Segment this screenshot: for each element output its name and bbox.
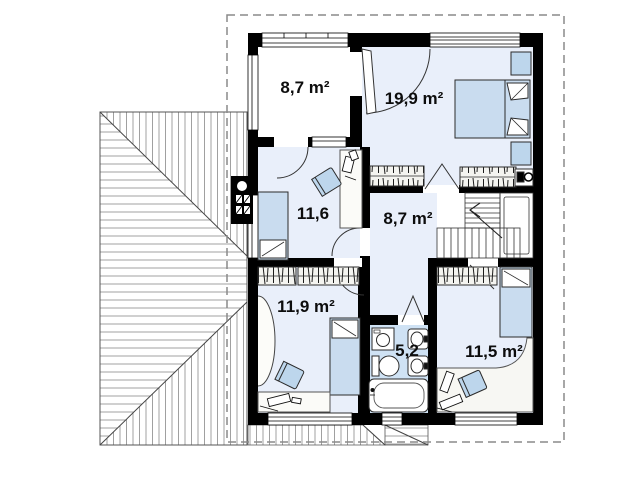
door-opening-bathroom — [398, 315, 424, 325]
window-balcony-bedroom2 — [312, 137, 346, 147]
wardrobe-bedroom4 — [437, 267, 497, 285]
door-opening-balcony-bedroom2 — [274, 137, 308, 147]
wall-vent-box — [515, 169, 533, 186]
balcony-label: 8,7 m² — [280, 78, 329, 97]
washing-machine — [372, 328, 394, 350]
door-opening-bedroom3 — [334, 258, 362, 267]
door-opening-bedroom2 — [360, 228, 370, 256]
floor-plan-drawing: 8,7 m² 19,9 m² 11,6 8,7 m² 11,9 m² 5,2 1… — [0, 0, 640, 478]
wardrobe-bedroom1-left — [370, 166, 424, 186]
wardrobe-bedroom1-right — [460, 167, 516, 187]
bedroom3-label: 11,9 m² — [277, 297, 335, 316]
window-bedroom3-bottom — [268, 413, 352, 425]
window-bathroom-bottom — [382, 413, 402, 425]
door-opening-balcony — [350, 52, 362, 96]
door-opening-bedroom1 — [423, 185, 459, 193]
bedroom2-label: 11,6 — [297, 204, 329, 223]
bedroom4-label: 11,5 m² — [465, 342, 523, 361]
window-bedroom4-bottom — [455, 413, 517, 425]
single-bed-bedroom3 — [330, 318, 360, 395]
wall-bathroom-bedroom4 — [428, 258, 437, 413]
window-balcony-left — [248, 55, 258, 130]
single-bed-bedroom2 — [258, 192, 288, 260]
bedroom1-label: 19,9 m² — [385, 89, 444, 108]
nightstand-bottom — [511, 142, 531, 165]
wardrobe-bedroom3-left — [258, 267, 296, 285]
floor-plan-page: 8,7 m² 19,9 m² 11,6 8,7 m² 11,9 m² 5,2 1… — [0, 0, 640, 478]
window-balcony-top — [262, 33, 348, 47]
hall-label: 8,7 m² — [383, 209, 432, 228]
single-bed-bedroom4 — [500, 267, 532, 337]
window-bedroom1-top — [430, 33, 520, 47]
bathroom-label: 5,2 — [395, 341, 419, 360]
double-bed — [455, 80, 530, 138]
bathtub — [369, 379, 428, 412]
wardrobe-bedroom3-right — [298, 267, 359, 285]
door-opening-bedroom4 — [468, 258, 498, 267]
nightstand-top — [511, 52, 531, 75]
chimney-block — [231, 176, 253, 224]
